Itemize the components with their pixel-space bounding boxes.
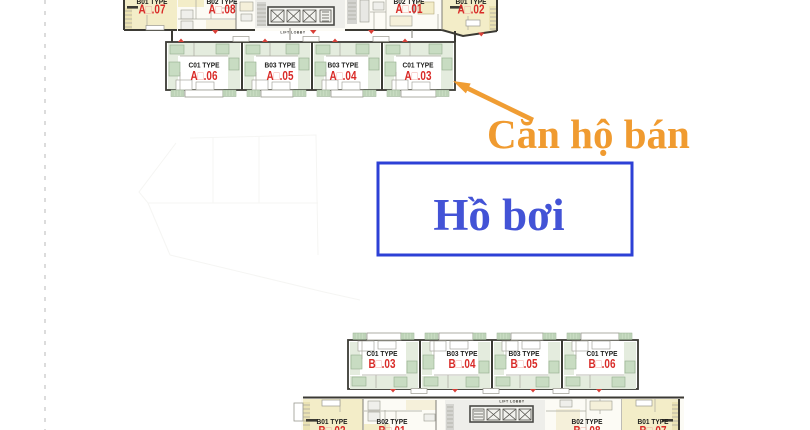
svg-text:A□.02: A□.02 xyxy=(458,3,485,17)
svg-text:A□.01: A□.01 xyxy=(396,2,423,16)
svg-text:B□.01: B□.01 xyxy=(379,424,406,430)
svg-text:A□.05: A□.05 xyxy=(267,69,294,83)
svg-text:A□.03: A□.03 xyxy=(405,69,432,83)
svg-text:A□.06: A□.06 xyxy=(191,69,218,83)
svg-text:B□.07: B□.07 xyxy=(640,424,667,430)
svg-text:B□.03: B□.03 xyxy=(369,357,396,371)
svg-text:LIFT LOBBY: LIFT LOBBY xyxy=(280,31,305,35)
svg-text:A□.07: A□.07 xyxy=(139,3,166,17)
svg-text:Căn hộ bán: Căn hộ bán xyxy=(487,111,690,157)
svg-text:A□.04: A□.04 xyxy=(330,69,357,83)
svg-text:A□.08: A□.08 xyxy=(209,3,236,17)
svg-text:B□.06: B□.06 xyxy=(589,357,616,371)
svg-text:B□.02: B□.02 xyxy=(319,424,346,430)
svg-text:Hồ bơi: Hồ bơi xyxy=(433,190,564,240)
svg-text:B□.05: B□.05 xyxy=(511,357,538,371)
svg-text:LIFT LOBBY: LIFT LOBBY xyxy=(499,400,524,404)
svg-text:B□.04: B□.04 xyxy=(449,357,476,371)
svg-text:B□.08: B□.08 xyxy=(574,424,601,430)
